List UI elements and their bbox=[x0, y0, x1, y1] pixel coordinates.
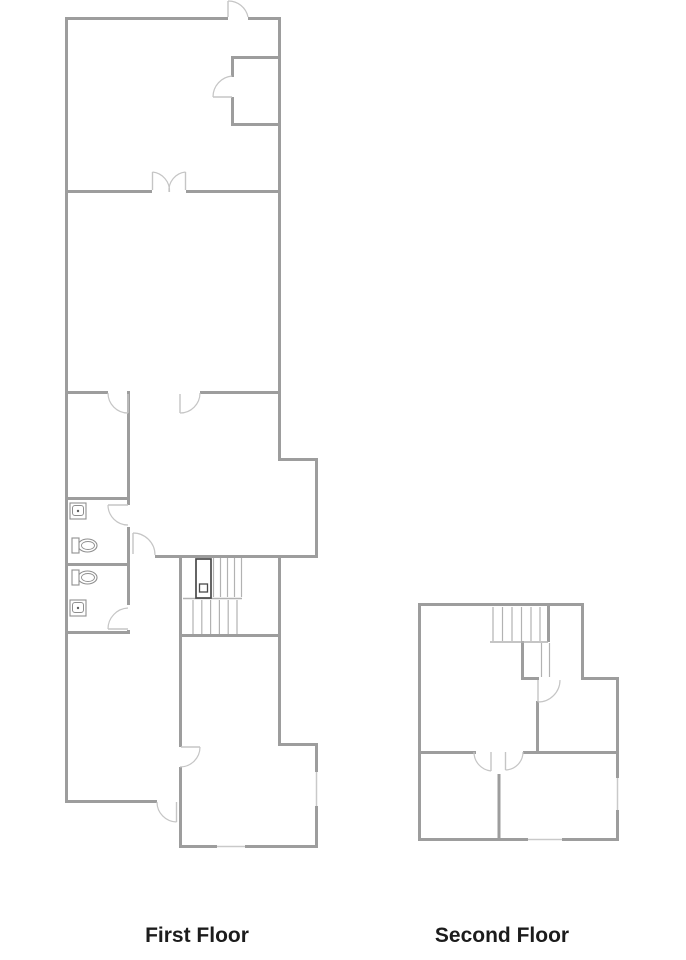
door-swing-arc bbox=[474, 752, 491, 771]
wall-segment bbox=[521, 641, 524, 680]
wall-segment bbox=[231, 56, 281, 59]
first-floor-label: First Floor bbox=[145, 924, 249, 948]
sink-fixture bbox=[70, 600, 86, 616]
floor-plans-drawing bbox=[0, 0, 686, 960]
wall-segment bbox=[581, 677, 619, 680]
wall-segment bbox=[245, 845, 318, 848]
door-swing-arc bbox=[180, 393, 200, 413]
elevator-car bbox=[200, 584, 208, 592]
wall-segment bbox=[418, 603, 584, 606]
door-swing-arc bbox=[506, 752, 524, 770]
wall-segment bbox=[179, 555, 182, 637]
wall-segment bbox=[418, 603, 421, 841]
wall-segment bbox=[179, 634, 281, 637]
wall-segment bbox=[65, 631, 130, 634]
wall-segment bbox=[179, 845, 217, 848]
wall-segment bbox=[616, 677, 619, 778]
floor-plan-page: First Floor Second Floor bbox=[0, 0, 686, 960]
first-floor-plan bbox=[65, 1, 318, 848]
wall-segment bbox=[521, 677, 539, 680]
door-swing-arc bbox=[153, 172, 170, 192]
wall-segment bbox=[231, 97, 234, 126]
toilet-fixture bbox=[72, 570, 97, 585]
wall-segment bbox=[498, 774, 501, 841]
door-swing-arc bbox=[108, 608, 128, 629]
wall-segment bbox=[315, 743, 318, 772]
wall-segment bbox=[200, 391, 281, 394]
wall-segment bbox=[65, 563, 130, 566]
wall-segment bbox=[186, 190, 281, 193]
sink-fixture bbox=[70, 503, 86, 519]
sink-drain bbox=[77, 607, 79, 609]
wall-segment bbox=[523, 751, 619, 754]
wall-segment bbox=[231, 56, 234, 77]
wall-segment bbox=[179, 637, 182, 747]
wall-segment bbox=[278, 458, 318, 461]
door-swing-arc bbox=[108, 393, 128, 413]
wall-segment bbox=[248, 17, 281, 20]
toilet-tank bbox=[72, 570, 79, 585]
second-floor-plan bbox=[418, 603, 619, 841]
wall-segment bbox=[278, 743, 318, 746]
wall-segment bbox=[278, 558, 281, 746]
toilet-tank bbox=[72, 538, 79, 553]
wall-segment bbox=[418, 751, 476, 754]
wall-segment bbox=[65, 190, 152, 193]
door-swing-arc bbox=[228, 1, 248, 17]
door-swing-arc bbox=[538, 680, 560, 702]
toilet-fixture bbox=[72, 538, 97, 553]
wall-segment bbox=[315, 806, 318, 848]
wall-segment bbox=[65, 17, 228, 20]
sink-drain bbox=[77, 510, 79, 512]
door-swing-arc bbox=[108, 505, 128, 525]
wall-segment bbox=[278, 17, 281, 461]
wall-segment bbox=[65, 800, 157, 803]
wall-segment bbox=[562, 838, 619, 841]
door-swing-arc bbox=[169, 172, 186, 192]
wall-segment bbox=[179, 767, 182, 848]
door-swing-arc bbox=[133, 533, 155, 555]
wall-segment bbox=[547, 603, 550, 642]
wall-segment bbox=[65, 391, 108, 394]
wall-segment bbox=[581, 603, 584, 680]
second-floor-label: Second Floor bbox=[435, 924, 569, 948]
wall-segment bbox=[616, 810, 619, 841]
wall-segment bbox=[231, 123, 281, 126]
door-swing-arc bbox=[157, 802, 177, 822]
wall-segment bbox=[536, 701, 539, 753]
door-swing-arc bbox=[180, 747, 200, 767]
wall-segment bbox=[315, 458, 318, 558]
wall-segment bbox=[65, 497, 130, 500]
wall-segment bbox=[65, 17, 68, 803]
wall-segment bbox=[418, 838, 528, 841]
door-swing-arc bbox=[213, 76, 232, 97]
